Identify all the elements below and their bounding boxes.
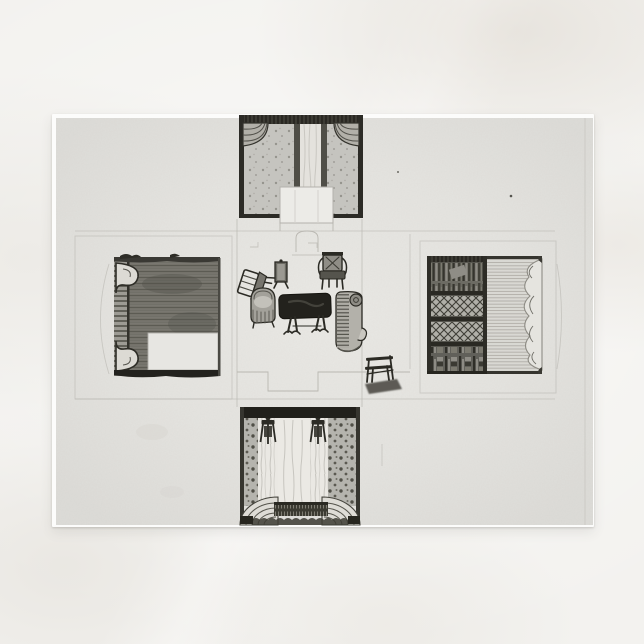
chaise-longue (336, 292, 367, 352)
bookcase-cornice (427, 256, 487, 262)
spotted-wallpaper-left (243, 418, 260, 506)
fringe-band (274, 504, 328, 516)
slatted-side (337, 294, 349, 348)
tub-chair (251, 288, 275, 328)
blank-door-cutout (148, 333, 218, 370)
lattice-door-lower (431, 322, 483, 341)
postcard (52, 114, 594, 527)
top-wall-elevation (239, 115, 363, 223)
bookcase (427, 256, 487, 374)
lattice-door-upper (431, 296, 483, 316)
dust-speck (397, 171, 399, 173)
room-design-drawing (52, 114, 594, 527)
chimney-breast-flap (280, 187, 333, 223)
left-wall-elevation (114, 254, 221, 378)
spotted-wallpaper-right (326, 418, 357, 506)
right-wall-elevation (427, 256, 542, 374)
bookshelf-bottom-books (431, 347, 483, 371)
bottom-wall-elevation (240, 407, 360, 525)
dark-cornice-band (240, 407, 360, 418)
striped-curtain-panel (487, 256, 542, 374)
dust-speck (510, 195, 513, 198)
